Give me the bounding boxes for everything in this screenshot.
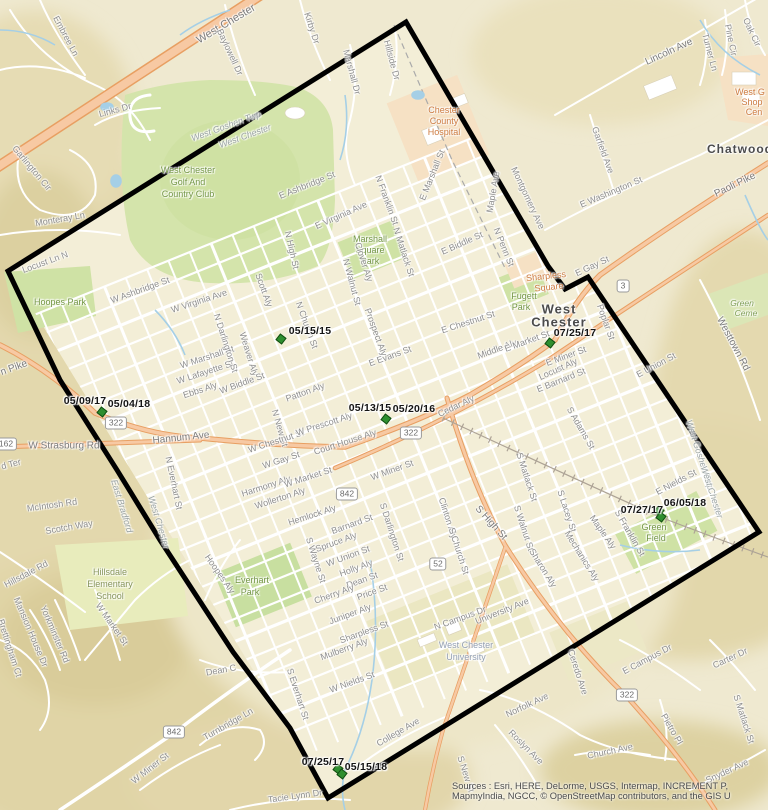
- map-label: Links Dr: [98, 101, 132, 119]
- map-labels-layer: Embree LnWest ChesterKirby DrBaylowell D…: [0, 0, 768, 810]
- map-label: Roslyn Ave: [507, 728, 546, 767]
- map-label: W Market St: [94, 601, 131, 647]
- feature-marker[interactable]: [380, 413, 391, 424]
- map-label: Country Club: [162, 189, 215, 199]
- map-label: Chester: [428, 105, 460, 115]
- map-label: Fugett: [511, 291, 537, 301]
- map-label: Cherry Aly: [313, 582, 355, 606]
- map-label: W Prescott Aly: [295, 410, 354, 438]
- marker-date-label: 07/25/17: [554, 327, 596, 339]
- map-label: Park: [241, 587, 260, 597]
- map-label: S Adams St: [565, 405, 597, 451]
- map-label: E Nields St: [654, 467, 698, 497]
- map-label: Turner Ln: [700, 32, 720, 72]
- map-label: Hospital: [428, 127, 461, 137]
- route-shield-842: 842: [336, 488, 358, 501]
- map-label: Juniper Aly: [328, 602, 373, 626]
- map-label: Hannum Ave: [152, 430, 210, 447]
- map-label: Pietro Pl: [659, 712, 685, 746]
- map-label: Park: [512, 302, 531, 312]
- map-label: Turnbridge Ln: [201, 706, 254, 743]
- map-label: Paoli Pike: [713, 170, 758, 199]
- map-label: E Chestnut St: [440, 309, 496, 336]
- map-label: E Virginia Ave: [314, 199, 369, 231]
- map-label: Mechanics Aly: [563, 529, 602, 583]
- map-label: College Ave: [375, 716, 421, 749]
- map-label: Green: [641, 522, 666, 532]
- map-label: n Pike: [0, 358, 29, 378]
- map-label: Garfield Ave: [590, 125, 616, 174]
- map-label: Hoopes Aly: [203, 552, 237, 595]
- map-label: Golf And: [171, 177, 206, 187]
- map-label: West Chester: [699, 465, 725, 520]
- map-label: Norfolk Ave: [504, 691, 550, 719]
- route-shield-3: 3: [617, 280, 630, 293]
- map-label: S High St: [473, 504, 509, 543]
- marker-date-label: 05/20/16: [393, 403, 435, 415]
- map-label: School: [96, 591, 124, 601]
- map-label: Prospect Aly: [363, 307, 390, 357]
- map-label: E Washington St: [578, 174, 643, 209]
- map-label: Monteray Ln: [34, 210, 85, 229]
- map-label: Brettingham Ct: [0, 618, 24, 678]
- map-label: Maple Aly: [588, 513, 619, 551]
- map-label: E Union St: [635, 350, 678, 379]
- map-label: Ceredo Ave: [566, 648, 590, 696]
- feature-marker[interactable]: [275, 333, 286, 344]
- map-label: University: [446, 652, 486, 662]
- map-label: E Gay St: [574, 254, 611, 278]
- attribution-line2: MapmyIndia, NGCC, © OpenStreetMap contri…: [452, 791, 768, 801]
- map-label: Weaver Aly: [238, 331, 261, 377]
- map-label: Garlington Cir: [10, 144, 53, 193]
- route-shield-322: 322: [400, 427, 422, 440]
- map-label: Pine Cir: [723, 23, 739, 56]
- route-shield-322: 322: [616, 689, 638, 702]
- map-label: West G: [735, 87, 765, 97]
- map-label: E Market St: [503, 328, 551, 353]
- map-label: Everhart: [235, 575, 269, 585]
- map-label: E Evans St: [367, 344, 412, 369]
- map-label: Carter Dr: [711, 646, 749, 671]
- map-label: Cedar Aly: [436, 393, 476, 419]
- map-label: S Lacey St: [556, 489, 579, 533]
- route-shield-842: 842: [163, 726, 185, 739]
- map-label: Embree Ln: [51, 14, 81, 58]
- map-label: Maple Ave: [484, 171, 501, 214]
- map-label: Square: [534, 281, 564, 294]
- map-label: W Gay St: [261, 449, 301, 470]
- route-shield-162: 162: [0, 438, 17, 451]
- marker-date-label: 05/04/18: [108, 398, 150, 410]
- map-label: d Ter: [0, 457, 22, 472]
- map-label: West Chester: [439, 640, 493, 650]
- route-shield-52: 52: [429, 558, 446, 571]
- map-label: Kirby Dr: [302, 11, 322, 45]
- marker-date-label: 05/13/15: [349, 402, 391, 414]
- map-label: Church Ave: [586, 741, 633, 760]
- marker-date-label: 05/15/18: [345, 761, 387, 773]
- map-label: Scotch Way: [45, 518, 94, 536]
- map-label: E Marshall St: [417, 148, 446, 201]
- map-label: Tacie Lynn Dr: [267, 787, 323, 805]
- map-label: E Ashbridge St: [278, 169, 337, 201]
- marker-date-label: 07/25/17: [302, 756, 344, 768]
- map-label: Elementary: [87, 579, 133, 589]
- map-label: W Miner St: [129, 750, 170, 785]
- map-label: S Matlack St: [731, 693, 756, 744]
- map-label: Cen: [746, 107, 763, 117]
- map-label: Shop: [741, 97, 762, 107]
- map-label: Dean C: [205, 662, 237, 677]
- map-label: Green: [730, 298, 754, 308]
- map-canvas[interactable]: Embree LnWest ChesterKirby DrBaylowell D…: [0, 0, 768, 810]
- map-label: Hemlock Aly: [287, 503, 337, 528]
- map-label: East Bradford: [109, 478, 135, 534]
- map-label: N Franklin St: [373, 174, 400, 226]
- map-label: Marshall Dr: [341, 48, 363, 95]
- marker-date-label: 05/15/15: [289, 325, 331, 337]
- map-label: Court House Aly: [313, 427, 378, 457]
- map-label: S Walnut St: [512, 504, 536, 552]
- map-label: W Ashbridge St: [109, 275, 171, 306]
- map-label: W Virginia Ave: [170, 287, 228, 314]
- map-label: Westtown Rd: [714, 315, 752, 373]
- map-label: S Matlack St: [514, 451, 539, 502]
- attribution: Sources : Esri, HERE, DeLorme, USGS, Int…: [452, 781, 768, 801]
- map-label: W Nields St: [328, 669, 376, 694]
- map-label: Poplar St: [595, 303, 617, 341]
- map-label: Oak Cir: [741, 16, 763, 48]
- map-label: N High St: [283, 230, 301, 270]
- map-label: Patton Aly: [284, 380, 326, 403]
- map-label: E Campus Dr: [621, 642, 673, 676]
- map-label: E Biddle St: [440, 229, 485, 256]
- marker-date-label: 06/05/18: [664, 497, 706, 509]
- map-label: Chatwood: [707, 142, 768, 156]
- map-label: W Biddle St: [218, 370, 266, 395]
- route-shield-322: 322: [105, 417, 127, 430]
- map-label: Hoopes Park: [34, 297, 86, 307]
- map-label: McIntosh Rd: [26, 497, 77, 514]
- map-label: Montgomery Ave: [509, 165, 547, 230]
- map-label: Ceme: [735, 308, 758, 318]
- marker-date-label: 05/09/17: [64, 395, 106, 407]
- map-label: W Strasburg Rd: [28, 441, 99, 452]
- map-label: Scott Aly: [253, 272, 274, 308]
- map-label: S Darlington St: [378, 502, 406, 563]
- map-label: West Chester: [146, 495, 171, 550]
- map-label: S Everhart St: [285, 667, 311, 721]
- attribution-line1: Sources : Esri, HERE, DeLorme, USGS, Int…: [452, 781, 768, 791]
- map-label: Lincoln Ave: [644, 36, 695, 68]
- map-label: N Matlack St: [391, 226, 416, 278]
- map-label: Baylowell Dr: [215, 27, 245, 77]
- map-label: Sharon Aly: [527, 547, 559, 589]
- marker-date-label: 07/27/17: [621, 504, 663, 516]
- map-label: County: [430, 116, 459, 126]
- map-label: N Everhart St: [163, 456, 184, 511]
- map-label: Field: [646, 533, 666, 543]
- map-label: S Church St: [447, 526, 472, 575]
- map-label: W Miner St: [369, 458, 414, 483]
- map-label: Hillside Dr: [382, 39, 402, 81]
- map-label: Hillsdale Rd: [2, 558, 49, 589]
- map-label: West Chester: [161, 165, 215, 175]
- map-label: N Penn St: [492, 226, 517, 268]
- map-label: Locust Ln N: [21, 249, 70, 275]
- map-label: W Market St: [283, 465, 333, 490]
- map-label: Hillsdale: [93, 567, 127, 577]
